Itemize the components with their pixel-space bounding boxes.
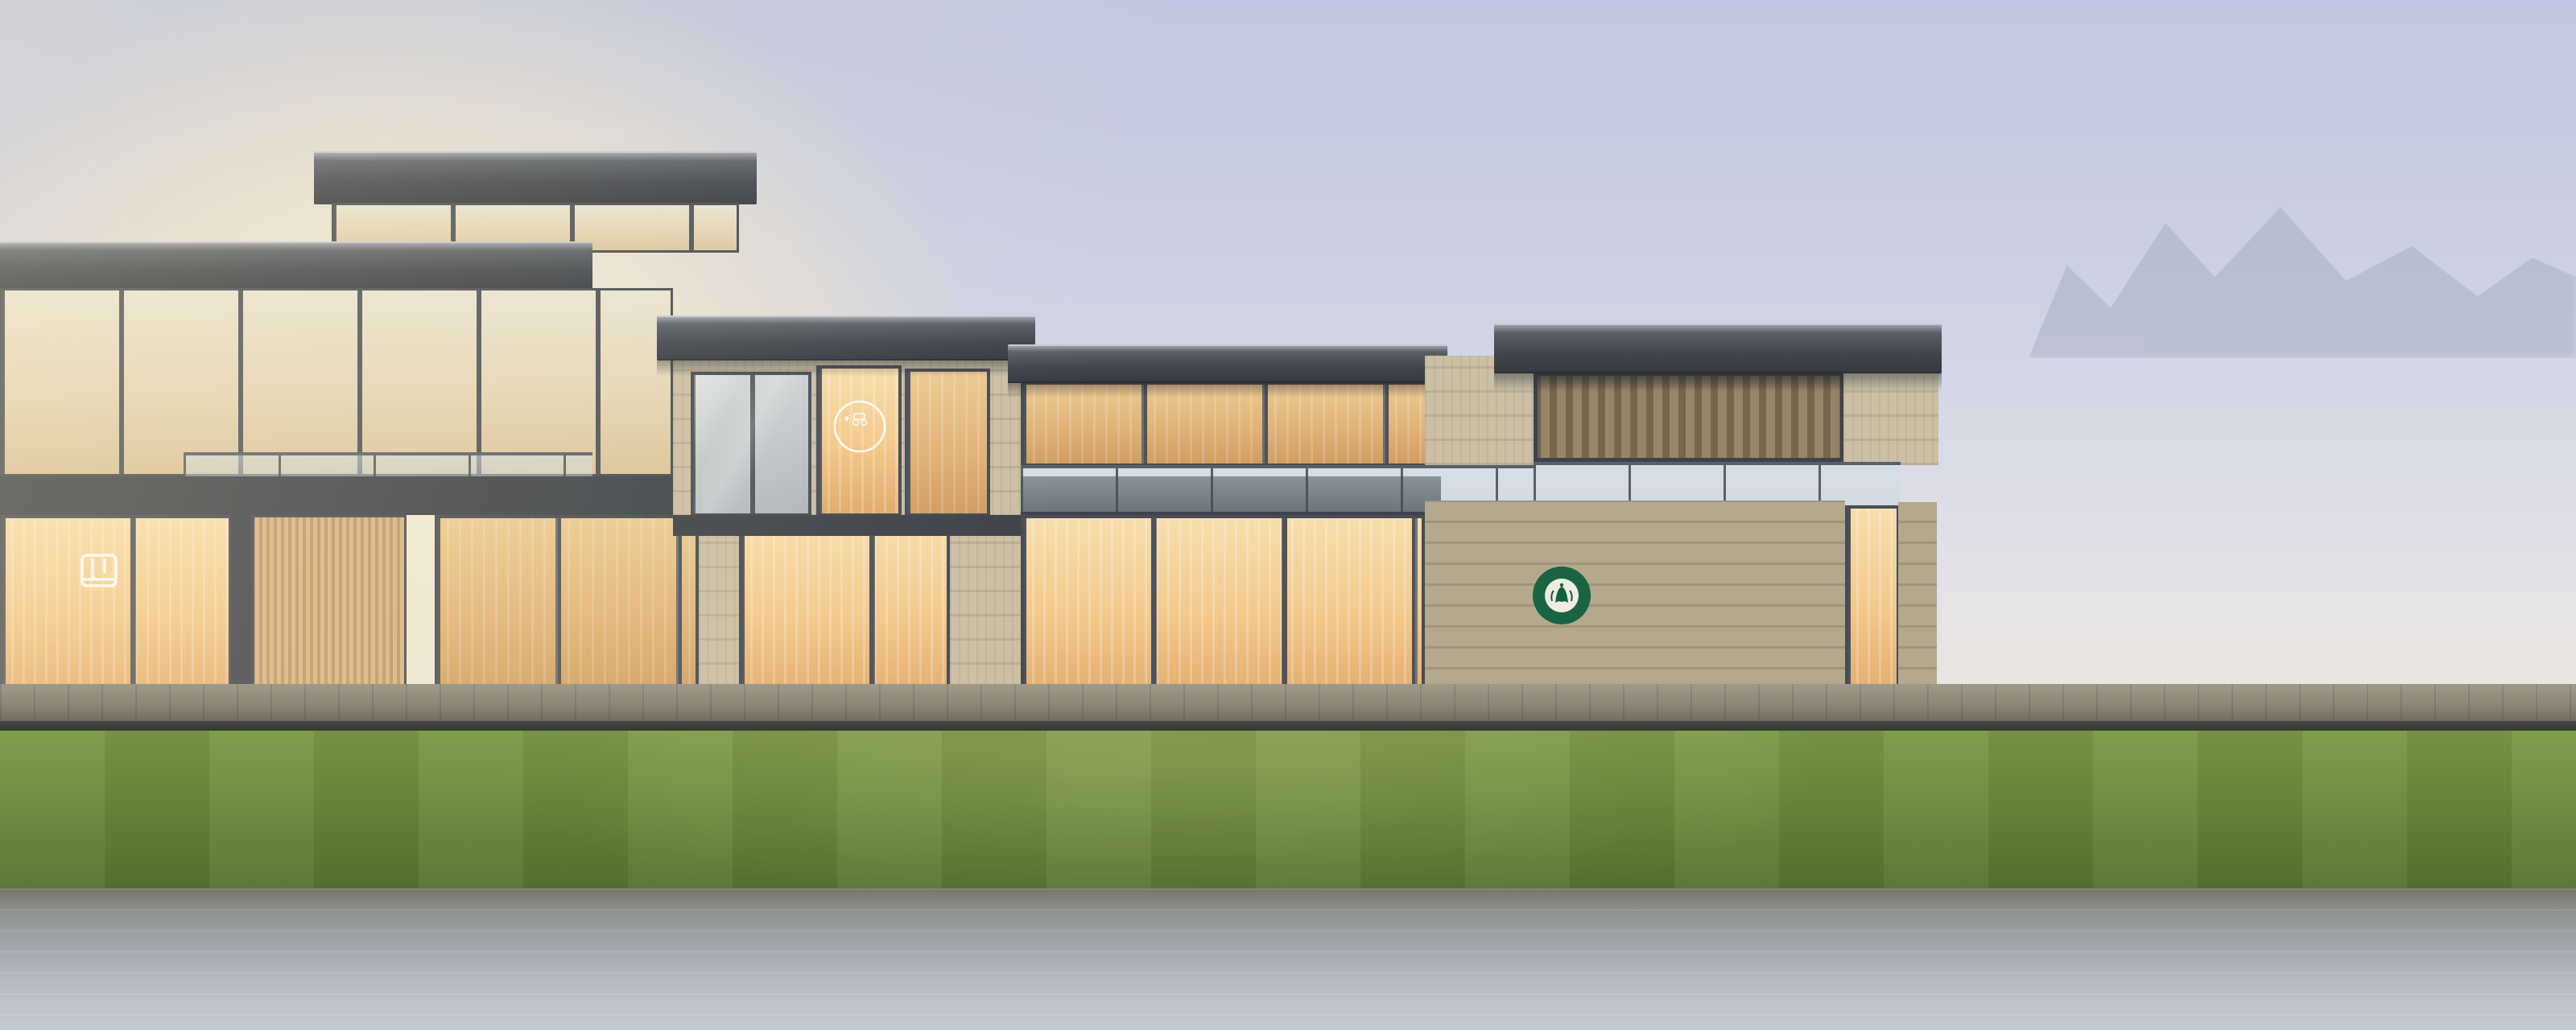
foreground-scene bbox=[0, 0, 2576, 1030]
rendered-scene bbox=[0, 0, 2576, 1030]
